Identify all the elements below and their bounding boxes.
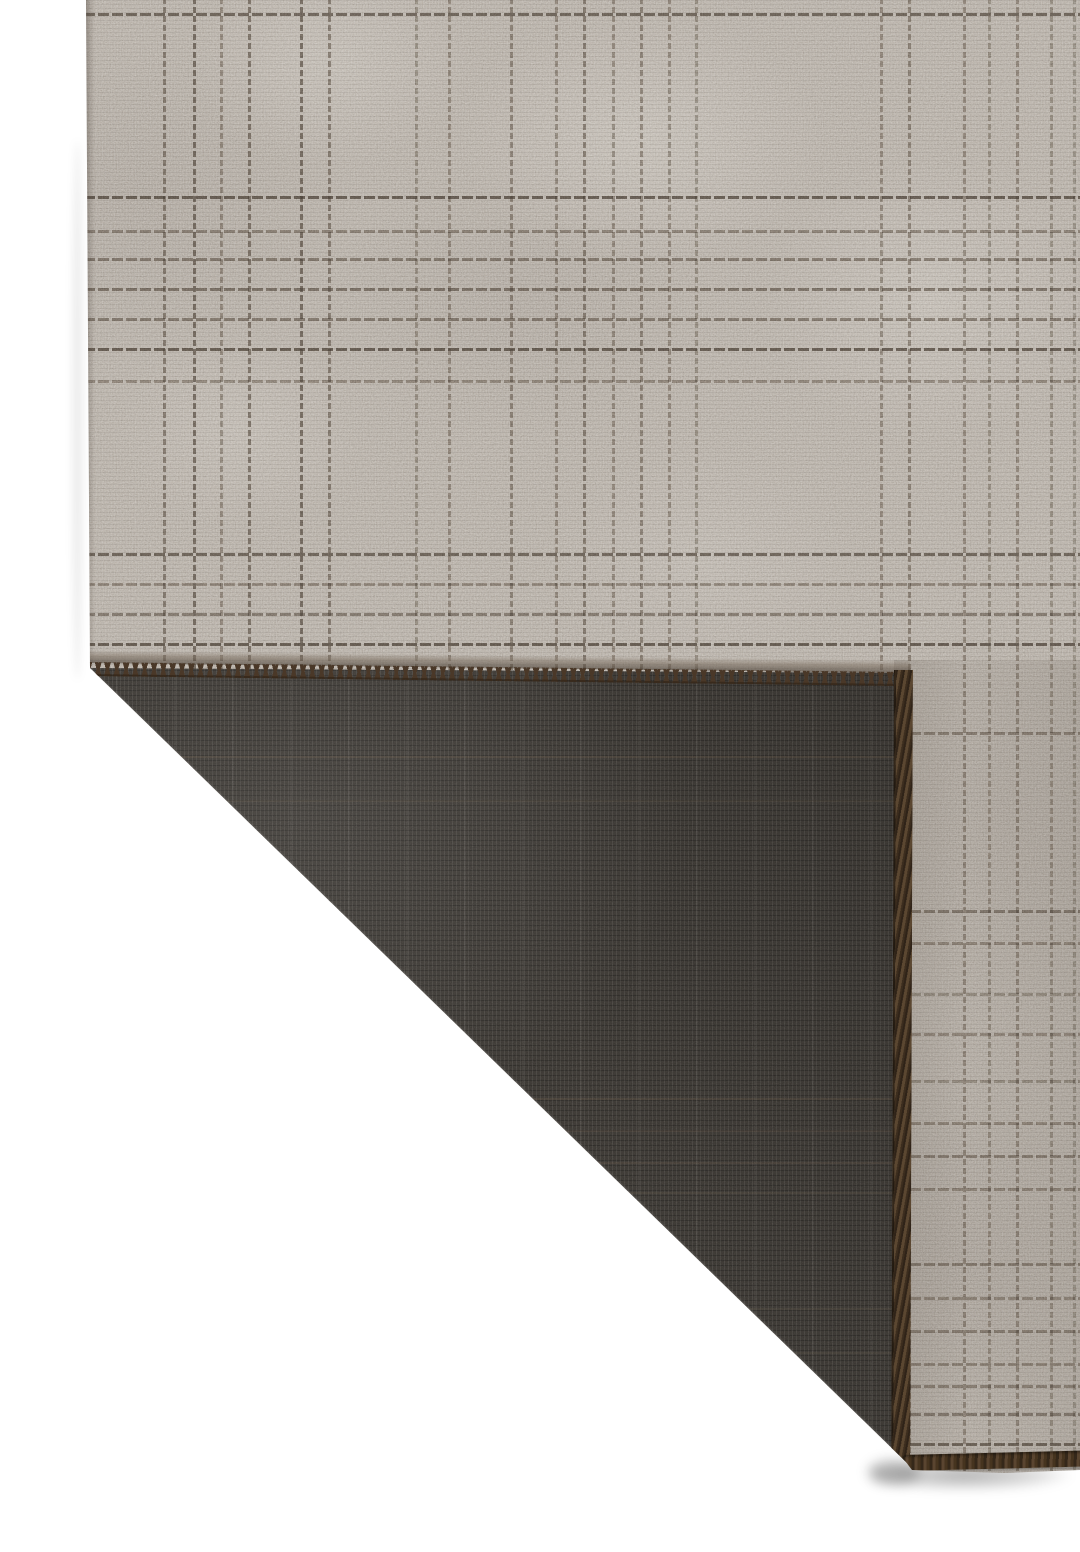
left-selvage-edge (82, 0, 95, 674)
left-edge-floor-shadow (72, 140, 83, 680)
h-grid-line (0, 348, 1080, 351)
rug (0, 0, 1080, 1552)
h-grid-line (0, 583, 1080, 586)
h-grid-line (0, 13, 1080, 16)
product-photo-stage (0, 0, 1080, 1552)
h-grid-line (0, 196, 1080, 199)
h-grid-line (0, 318, 1080, 321)
right-strip-shading (894, 660, 1080, 1475)
stitched-edge-right (891, 670, 913, 1464)
h-grid-line (0, 230, 1080, 233)
h-grid-line (0, 380, 1080, 383)
h-grid-line (0, 643, 1080, 646)
v-grid-line (193, 0, 196, 1552)
h-grid-line (0, 613, 1080, 616)
h-grid-line (0, 553, 1080, 556)
h-grid-line (0, 288, 1080, 291)
v-grid-line (163, 0, 166, 1552)
h-grid-line (0, 258, 1080, 261)
